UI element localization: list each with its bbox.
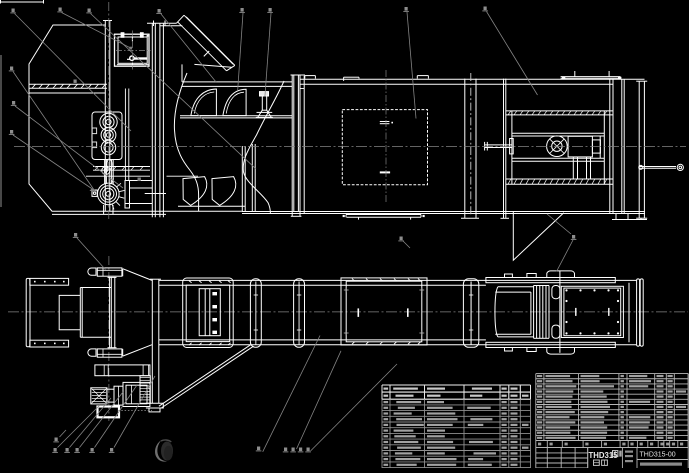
svg-text:THD315-00: THD315-00 xyxy=(640,452,676,459)
svg-text:THD315: THD315 xyxy=(589,451,619,460)
